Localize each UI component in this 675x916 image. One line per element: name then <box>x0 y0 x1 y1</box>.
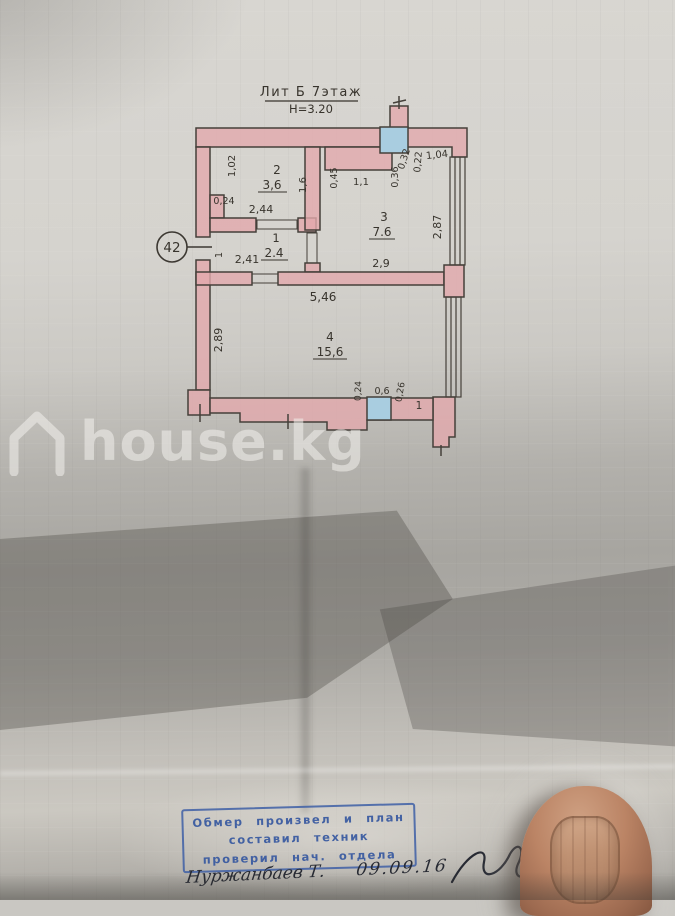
dim-label: 0,45 <box>329 167 340 188</box>
room-1-area: 2.4 <box>264 246 283 260</box>
dim-label: 1 <box>416 400 423 412</box>
room-3-number: 3 <box>380 210 388 224</box>
room-4-area: 15,6 <box>317 345 344 359</box>
dim-label: 5,46 <box>310 290 337 304</box>
dim-label: 2,9 <box>372 257 390 270</box>
stamp-line-2: составил техник <box>184 828 414 848</box>
paper-crease-vertical <box>298 468 312 813</box>
plan-height-note: Н=3.20 <box>289 102 333 116</box>
room-4-number: 4 <box>326 330 334 344</box>
door-leaf-kitchen <box>307 233 317 263</box>
vent-shaft-bottom <box>367 397 391 420</box>
room-3-area: 7.6 <box>372 225 391 239</box>
dim-label: 1,6 <box>298 177 309 193</box>
dim-label: 0,22 <box>412 151 425 173</box>
vent-stub <box>390 106 408 128</box>
dim-label: 2,44 <box>249 203 274 216</box>
room-2-number: 2 <box>273 163 281 177</box>
dim-label: 2,41 <box>235 253 260 266</box>
signature-date: 09.09.16 <box>355 856 449 880</box>
plan-walls <box>188 96 467 456</box>
door-leaf-bathroom <box>257 220 297 229</box>
dim-label: 0,24 <box>354 381 365 402</box>
house-icon <box>6 408 68 476</box>
watermark-text: house.kg <box>80 415 366 469</box>
dim-label: 0,24 <box>213 196 234 207</box>
dim-label: 2,87 <box>431 215 444 240</box>
room-2-area: 3,6 <box>262 178 281 192</box>
dim-label: 1,04 <box>425 149 448 162</box>
watermark: house.kg <box>6 408 366 476</box>
dim-label: 2,89 <box>212 328 225 353</box>
dim-label: 1 <box>214 252 225 258</box>
stamp-line-1: Обмер произвел и план <box>183 809 413 829</box>
unit-number: 42 <box>163 240 180 256</box>
thumb-nail <box>550 816 620 904</box>
dim-label: 0,6 <box>374 386 389 397</box>
room-1-number: 1 <box>272 231 279 245</box>
dim-label: 1,02 <box>227 155 238 177</box>
window-room4 <box>446 297 461 397</box>
plan-title: Лит Б 7этаж <box>260 85 362 100</box>
window-room3 <box>450 157 465 265</box>
dim-label: 1,1 <box>353 177 369 188</box>
